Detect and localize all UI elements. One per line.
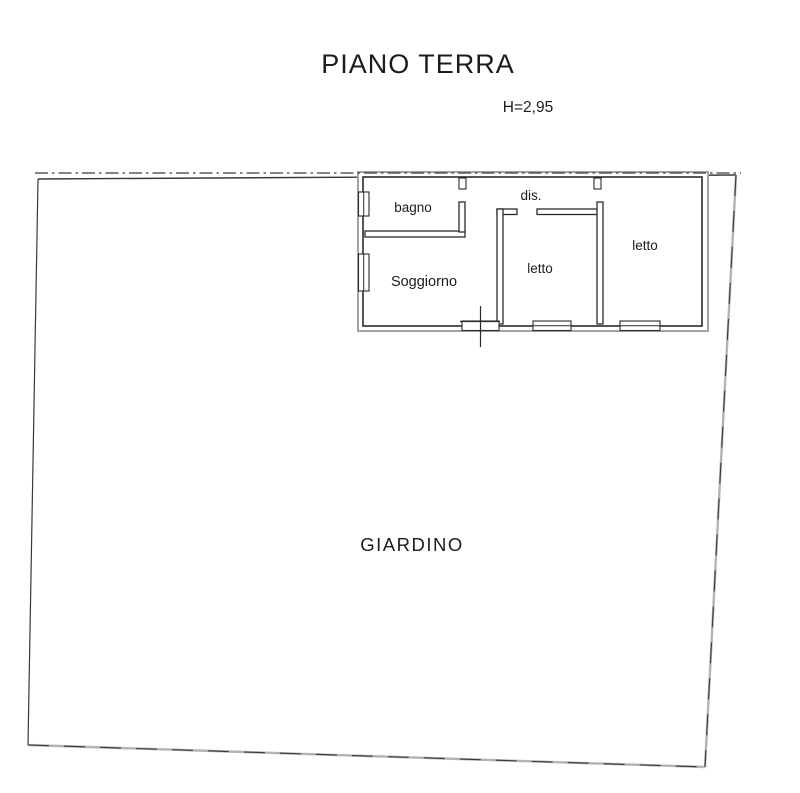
wall-dis-bottom	[537, 209, 601, 215]
window-symbol-letto-center	[533, 321, 571, 331]
wall-letto-center-left	[497, 209, 503, 324]
room-label-letto-center: letto	[527, 261, 553, 276]
floorplan-drawing: PIANO TERRA H=2,95	[0, 0, 800, 793]
window-symbol-soggiorno	[359, 254, 370, 291]
area-label-giardino: GIARDINO	[360, 534, 463, 555]
wall-bagno-right-stub	[459, 202, 465, 232]
ceiling-height-label: H=2,95	[503, 99, 553, 116]
room-label-letto-right: letto	[632, 238, 658, 253]
floorplan-page: PIANO TERRA H=2,95	[0, 0, 800, 793]
wall-stub-top-b	[594, 178, 601, 189]
window-symbol-letto-right	[620, 321, 660, 331]
garden-edge-left	[28, 179, 38, 745]
room-label-soggiorno: Soggiorno	[391, 274, 457, 290]
window-symbol-bagno	[359, 192, 370, 216]
page-title: PIANO TERRA	[321, 49, 515, 79]
room-label-dis: dis.	[520, 188, 541, 203]
wall-stub-top-a	[459, 178, 466, 189]
wall-bagno-bottom	[365, 231, 465, 237]
wall-letto-right-left	[597, 202, 603, 324]
room-label-bagno: bagno	[394, 200, 432, 215]
